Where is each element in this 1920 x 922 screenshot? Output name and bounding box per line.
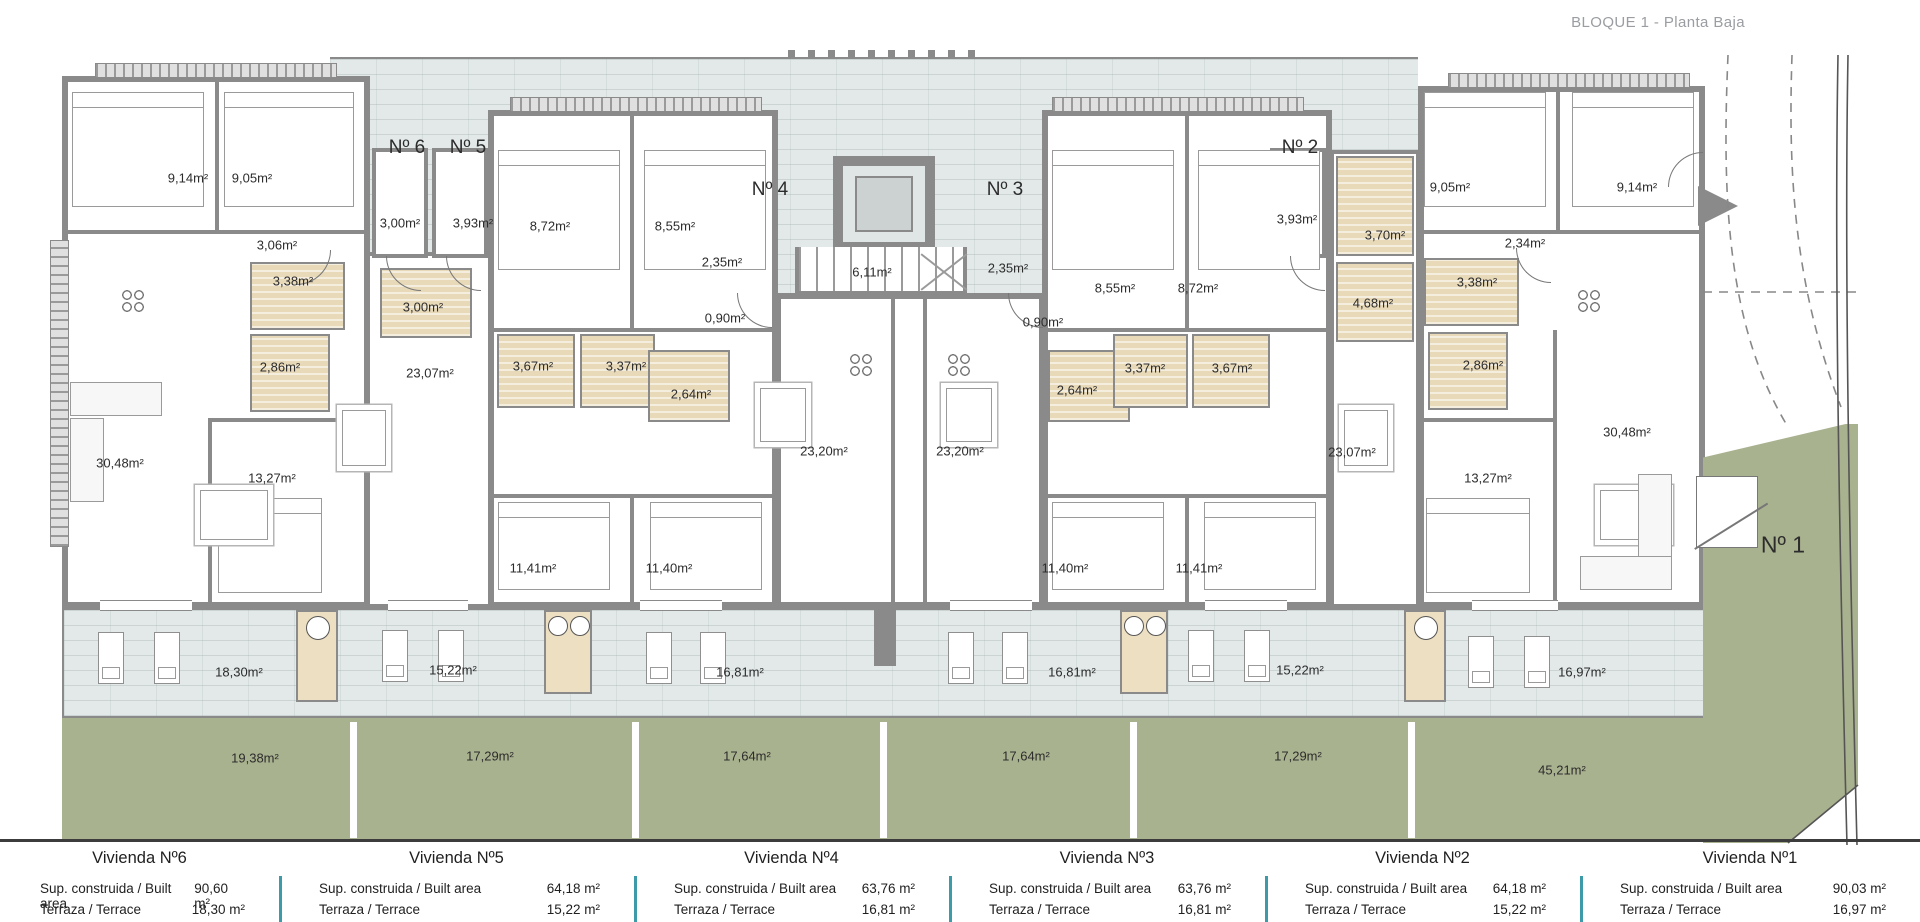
- terrace-area-label: 16,97m²: [1558, 665, 1606, 680]
- table-row: Sup. construida / Built area64,18 m²: [1305, 881, 1546, 896]
- room-area-label: 3,06m²: [257, 238, 297, 253]
- garden-area-label: 17,29m²: [1274, 749, 1322, 764]
- wall: [630, 112, 634, 330]
- lobby-n5: [432, 148, 488, 258]
- room-area-label: 23,07m²: [1328, 445, 1376, 460]
- row-value: 15,22 m²: [547, 902, 600, 917]
- window: [1205, 600, 1287, 611]
- bed: [498, 502, 610, 590]
- washer-drum-icon: [548, 616, 568, 636]
- room-area-label: 3,70m²: [1365, 228, 1405, 243]
- sun-lounger: [646, 632, 672, 684]
- wall: [64, 230, 368, 234]
- row-label: Terraza / Terrace: [319, 902, 420, 917]
- terrace-area-label: 18,30m²: [215, 665, 263, 680]
- table-row: Sup. construida / Built area63,76 m²: [674, 881, 915, 896]
- garden-area-label: 17,64m²: [723, 749, 771, 764]
- table-divider: [1265, 876, 1268, 922]
- bed: [1052, 502, 1164, 590]
- sofa: [70, 382, 162, 416]
- washer-drum-icon: [570, 616, 590, 636]
- sun-lounger: [98, 632, 124, 684]
- table-column-v2: Vivienda Nº2 Sup. construida / Built are…: [1265, 845, 1580, 920]
- stove-burners: [848, 352, 874, 378]
- garden-divider: [1130, 722, 1137, 838]
- table-column-v1: Vivienda Nº1 Sup. construida / Built are…: [1580, 845, 1920, 920]
- unit-label-n2: Nº 2: [1282, 137, 1319, 159]
- sofa: [1580, 556, 1672, 590]
- table-row: Sup. construida / Built area90,03 m²: [1620, 881, 1886, 896]
- room-area-label: 8,72m²: [1178, 281, 1218, 296]
- terrace-divider-wall: [874, 608, 896, 666]
- row-value: 16,81 m²: [1178, 902, 1231, 917]
- bed: [1204, 502, 1316, 590]
- room-area-label: 8,55m²: [1095, 281, 1135, 296]
- room-area-label: 9,05m²: [1430, 180, 1470, 195]
- row-label: Terraza / Terrace: [989, 902, 1090, 917]
- room-area-label: 0,90m²: [705, 311, 745, 326]
- room-area-label: 8,55m²: [655, 219, 695, 234]
- room-area-label: 23,07m²: [406, 366, 454, 381]
- elevator-car: [855, 176, 913, 232]
- garden-area-label: 17,64m²: [1002, 749, 1050, 764]
- bed: [644, 150, 766, 270]
- wall: [923, 295, 927, 606]
- row-label: Terraza / Terrace: [1620, 902, 1721, 917]
- garden-area-label: 19,38m²: [231, 751, 279, 766]
- garden-area-label: 17,29m²: [466, 749, 514, 764]
- room-area-label: 2,35m²: [702, 255, 742, 270]
- table-column-title: Vivienda Nº2: [1265, 849, 1580, 868]
- unit-label-n1: Nº 1: [1761, 532, 1805, 559]
- row-label: Sup. construida / Built area: [1305, 881, 1467, 896]
- room-area-label: 3,93m²: [1277, 212, 1317, 227]
- storage-washer: [296, 610, 338, 702]
- garden-divider: [632, 722, 639, 838]
- room-area-label: 11,41m²: [510, 561, 557, 576]
- window: [1472, 600, 1558, 611]
- storage-washer: [1120, 610, 1168, 694]
- wall: [1553, 330, 1557, 606]
- unit-label-n4: Nº 4: [752, 179, 789, 201]
- table-column-v6: Vivienda Nº6 Sup. construida / Built are…: [0, 845, 279, 920]
- sun-lounger: [1468, 636, 1494, 688]
- row-value: 90,03 m²: [1833, 881, 1886, 896]
- table-column-v4: Vivienda Nº4 Sup. construida / Built are…: [634, 845, 949, 920]
- dining-table: [200, 490, 268, 540]
- washer-drum-icon: [306, 616, 330, 640]
- garden-divider: [350, 722, 357, 838]
- wall: [490, 328, 776, 332]
- bathroom: [1424, 258, 1519, 326]
- unit-label-n3: Nº 3: [987, 179, 1024, 201]
- garden-divider: [880, 722, 887, 838]
- terrace-area-label: 16,81m²: [1048, 665, 1096, 680]
- table-row: Terraza / Terrace16,97 m²: [1620, 902, 1886, 917]
- wall: [630, 496, 634, 606]
- sun-lounger: [948, 632, 974, 684]
- railing-left-side: [50, 240, 69, 547]
- room-area-label: 9,14m²: [1617, 180, 1657, 195]
- room-area-label: 3,37m²: [606, 359, 646, 374]
- sun-lounger: [1244, 630, 1270, 682]
- dining-table: [760, 388, 806, 442]
- row-label: Sup. construida / Built area: [674, 881, 836, 896]
- table-column-v5: Vivienda Nº5 Sup. construida / Built are…: [279, 845, 634, 920]
- table-row: Terraza / Terrace15,22 m²: [319, 902, 600, 917]
- row-value: 64,18 m²: [1493, 881, 1546, 896]
- window: [950, 600, 1032, 611]
- railing-n6: [95, 63, 337, 78]
- sheet-title: BLOQUE 1 - Planta Baja: [1571, 14, 1745, 31]
- row-value: 18,30 m²: [192, 902, 245, 917]
- table-top-rule: [0, 839, 1920, 842]
- railing-n1: [1448, 73, 1690, 88]
- terrace-area-label: 16,81m²: [716, 665, 764, 680]
- row-value: 15,22 m²: [1493, 902, 1546, 917]
- row-label: Sup. construida / Built area: [989, 881, 1151, 896]
- unit-label-n5: Nº 5: [450, 137, 487, 159]
- window: [388, 600, 468, 611]
- lobby-n6: [372, 148, 428, 258]
- room-area-label: 23,20m²: [800, 444, 848, 459]
- sun-lounger: [1002, 632, 1028, 684]
- room-area-label: 6,11m²: [852, 265, 892, 280]
- table-row: Terraza / Terrace16,81 m²: [674, 902, 915, 917]
- wall: [1185, 496, 1189, 606]
- wall: [1420, 230, 1703, 234]
- bed: [224, 92, 354, 207]
- room-area-label: 30,48m²: [1603, 425, 1651, 440]
- room-area-label: 3,38m²: [1457, 275, 1497, 290]
- wall: [1556, 88, 1560, 232]
- table-row: Sup. construida / Built area63,76 m²: [989, 881, 1231, 896]
- table-row: Terraza / Terrace18,30 m²: [40, 902, 245, 917]
- table-row: Terraza / Terrace16,81 m²: [989, 902, 1231, 917]
- table-column-title: Vivienda Nº5: [279, 849, 634, 868]
- room-area-label: 2,86m²: [1463, 358, 1503, 373]
- table-column-v3: Vivienda Nº3 Sup. construida / Built are…: [949, 845, 1265, 920]
- row-label: Terraza / Terrace: [40, 902, 141, 917]
- row-value: 16,97 m²: [1833, 902, 1886, 917]
- table-row: Sup. construida / Built area64,18 m²: [319, 881, 600, 896]
- sun-lounger: [382, 630, 408, 682]
- room-area-label: 2,86m²: [260, 360, 300, 375]
- room-area-label: 0,90m²: [1023, 315, 1063, 330]
- room-area-label: 3,67m²: [513, 359, 553, 374]
- room-area-label: 9,14m²: [168, 171, 208, 186]
- room-area-label: 3,38m²: [273, 274, 313, 289]
- table-divider: [634, 876, 637, 922]
- washer-drum-icon: [1124, 616, 1144, 636]
- floorplan-page: { "title": "BLOQUE 1 - Planta Baja", "co…: [0, 0, 1920, 920]
- row-value: 63,76 m²: [862, 881, 915, 896]
- row-label: Terraza / Terrace: [1305, 902, 1406, 917]
- bed: [1052, 150, 1174, 270]
- wall: [1185, 112, 1189, 330]
- wall: [1044, 328, 1330, 332]
- row-label: Sup. construida / Built area: [1620, 881, 1782, 896]
- bed: [650, 502, 762, 590]
- sun-lounger: [1524, 636, 1550, 688]
- window: [100, 600, 192, 611]
- elevator-shaft: [833, 156, 935, 252]
- washer-drum-icon: [1146, 616, 1166, 636]
- unit-label-n6: Nº 6: [389, 137, 426, 159]
- room-area-label: 9,05m²: [232, 171, 272, 186]
- stove-burners: [946, 352, 972, 378]
- storage-washer: [544, 610, 592, 694]
- railing-n5: [510, 97, 762, 112]
- room-area-label: 23,20m²: [936, 444, 984, 459]
- washer-drum-icon: [1414, 616, 1438, 640]
- row-value: 63,76 m²: [1178, 881, 1231, 896]
- dining-table: [946, 388, 992, 442]
- sun-lounger: [154, 632, 180, 684]
- room-area-label: 2,64m²: [671, 387, 711, 402]
- row-value: 16,81 m²: [862, 902, 915, 917]
- table-divider: [279, 876, 282, 922]
- bed: [498, 150, 620, 270]
- wall: [1420, 418, 1555, 422]
- room-area-label: 3,00m²: [403, 300, 443, 315]
- room-area-label: 2,35m²: [988, 261, 1028, 276]
- table-row: Terraza / Terrace15,22 m²: [1305, 902, 1546, 917]
- garden-area-label: 45,21m²: [1538, 763, 1586, 778]
- dining-table: [342, 410, 386, 466]
- room-area-label: 3,37m²: [1125, 361, 1165, 376]
- room-area-label: 30,48m²: [96, 456, 144, 471]
- row-label: Terraza / Terrace: [674, 902, 775, 917]
- bed: [1198, 150, 1320, 270]
- terrace-area-label: 15,22m²: [1276, 663, 1324, 678]
- fence-ticks: [788, 50, 978, 59]
- room-area-label: 3,93m²: [453, 216, 493, 231]
- table-column-title: Vivienda Nº6: [0, 849, 279, 868]
- room-area-label: 3,67m²: [1212, 361, 1252, 376]
- table-divider: [1580, 876, 1583, 922]
- room-area-label: 4,68m²: [1353, 296, 1393, 311]
- room-area-label: 2,64m²: [1057, 383, 1097, 398]
- table-divider: [949, 876, 952, 922]
- room-area-label: 11,41m²: [1176, 561, 1223, 576]
- site-boundary-drawing: [1700, 55, 1920, 845]
- row-value: 64,18 m²: [547, 881, 600, 896]
- table-column-title: Vivienda Nº3: [949, 849, 1265, 868]
- stove-burners: [120, 288, 146, 314]
- table-column-title: Vivienda Nº4: [634, 849, 949, 868]
- window: [640, 600, 722, 611]
- room-area-label: 3,00m²: [380, 216, 420, 231]
- stove-burners: [1576, 288, 1602, 314]
- bed: [72, 92, 204, 207]
- room-area-label: 8,72m²: [530, 219, 570, 234]
- sofa: [1638, 474, 1672, 558]
- room-area-label: 13,27m²: [248, 471, 296, 486]
- storage-washer: [1404, 610, 1446, 702]
- railing-n3: [1052, 97, 1304, 112]
- garden-divider: [1408, 722, 1415, 838]
- terrace-area-label: 15,22m²: [429, 663, 477, 678]
- wall: [891, 295, 895, 606]
- bed: [1426, 498, 1530, 593]
- room-area-label: 11,40m²: [646, 561, 693, 576]
- room-area-label: 11,40m²: [1042, 561, 1089, 576]
- room-area-label: 2,34m²: [1505, 236, 1545, 251]
- room-area-label: 13,27m²: [1464, 471, 1512, 486]
- wall: [215, 80, 219, 232]
- sun-lounger: [1188, 630, 1214, 682]
- table-column-title: Vivienda Nº1: [1580, 849, 1920, 868]
- row-label: Sup. construida / Built area: [319, 881, 481, 896]
